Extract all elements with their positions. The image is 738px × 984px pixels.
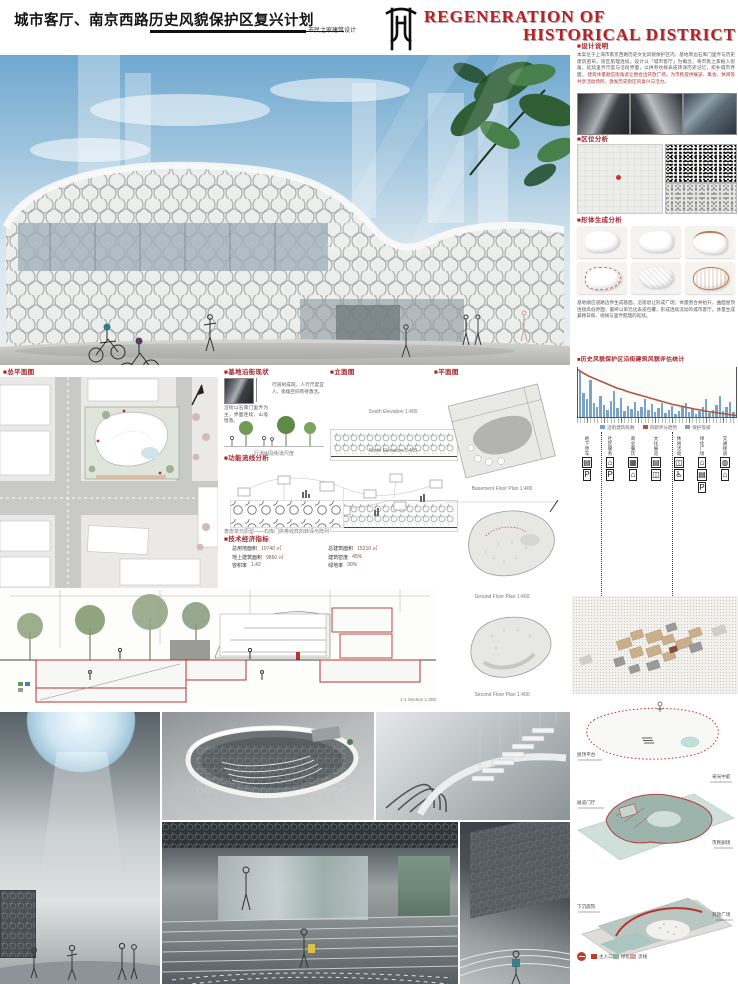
render-atrium-oculus [0,712,160,984]
plan-second [438,604,566,692]
design-notes-header: ■设计说明 [577,43,608,50]
indicator-value: 45% [352,554,362,561]
location-map [577,144,663,214]
plan-basement-caption: Basement Floor Plan 1:400 [438,486,566,492]
axon-legend-item: 流线 [630,954,647,959]
stats-chart [577,367,737,418]
timeline-column: 商业餐饮 ▦⌂ [623,434,643,494]
render-interior-steps [162,822,458,984]
timeline-label: 商业餐饮 [630,436,636,456]
aerial-lattice-texture [196,746,346,796]
plans-header: ■平面图 [434,369,459,376]
massing-grid [577,226,737,294]
teal-shirt [512,959,520,967]
massing-step-2 [631,226,681,258]
subtitle: 市民之家建筑设计 [308,25,356,34]
plan-basement [438,380,566,484]
timeline-label: 绿化广场 [699,436,705,456]
seal-logo-icon [383,3,419,53]
timeline-label: 地下停车 [584,436,590,456]
indicator-row: 地上建筑面积 9860 ㎡ [232,554,318,561]
indicator-label: 总用地面积 [232,545,257,552]
axon-legend-item: 绿化 [613,954,630,959]
street-photo [224,378,254,404]
massing-step-1 [577,226,627,258]
stats-header: ■历史风貌保护区沿街建筑风貌评估统计 [577,357,737,363]
courtyard-tree-view [398,856,450,916]
axon-middle-layer [578,794,734,860]
axon-label-right-3: 开放广场 [712,912,730,918]
site-photo-3 [683,93,737,135]
section-building [215,608,392,660]
title-en-line1: REGENERATION OF [424,8,736,25]
indicator-label: 建筑密度 [328,554,348,561]
timeline-label: 休闲活动 [676,436,682,456]
indicator-row: 总建筑面积 15210 ㎡ [328,545,412,552]
indicator-value: 15210 ㎡ [357,545,377,552]
timeline-pictograms: ▤P [581,456,594,481]
indicators-table: 总用地面积 10740 ㎡ 总建筑面积 15210 ㎡ 地上建筑面积 9860 … [232,545,412,569]
design-notes-body-red: 建筑体量顺应街角退让围合出开放广场，为市民提供展览、集会、休闲等共享活动场所，激… [577,72,735,84]
massing-step-5 [631,262,681,294]
indicator-value: 30% [347,562,357,569]
context-axon-buildings [572,596,738,694]
axon-legend: 主入口绿化流线 [577,952,697,961]
elevations-header: ■立面图 [330,369,355,376]
chart-legend-item: 沿街建筑栋数 [600,425,635,431]
indicator-label: 总建筑面积 [328,545,353,552]
timeline-column: 交通接驳 ◍⌂ [715,434,735,494]
massing-text: 基地顺应道路边界生成基面，沿街退让形成广场；体量围合并抬升，曲面屋顶连接高低界面… [577,300,735,320]
light-shaft [40,752,124,882]
render-lattice-detail [460,822,570,984]
plan-ground-caption: Ground Floor Plan 1:400 [438,594,566,600]
plan-ground [438,496,566,594]
chart-legend-item: 保护等级 [685,425,710,431]
indicator-value: 10740 ㎡ [261,545,281,552]
page-title: 城市客厅、南京西路历史风貌保护区复兴计划 [14,9,314,30]
indicator-value: 1.42 [251,562,261,569]
massing-step-3 [685,226,735,258]
timeline-column: 绿化广场 ⌂▤P [692,434,712,494]
timeline-pictograms: ⌂▤P [696,456,709,494]
site-plan [0,377,218,591]
spiral-stair-drawing [376,712,570,820]
indicator-label: 容积率 [232,562,247,569]
title-underline [150,30,306,33]
indicator-value: 9860 ㎡ [266,554,284,561]
section-caption: 1-1 Section 1:300 [356,697,436,702]
axon-label-right-2: 市民剧场 [712,840,730,846]
site-parcel [85,407,179,479]
axon-roof-layer [587,702,719,759]
timeline-column: 社区服务 ⌂P [600,434,620,494]
timeline-pictograms: ⌂P [604,456,617,481]
interior-person [226,862,266,918]
massing-step-6 [685,262,735,294]
plan-second-caption: Second Floor Plan 1:400 [438,692,566,698]
timeline-label: 社区服务 [607,436,613,456]
facade-pattern-strip [230,500,344,528]
indicators-header: ■技术经济指标 [224,536,269,543]
render-aerial-model [162,712,374,820]
siteplan-header: ■总平面图 [3,369,34,376]
aerial-texture-map [665,183,737,214]
no-entry-icon [577,952,586,961]
chart-axis-ticks [577,418,735,423]
indicator-label: 地上建筑面积 [232,554,262,561]
street-trees-diagram [224,416,324,450]
location-header: ■区位分析 [577,136,608,143]
title-en-line2: HISTORICAL DISTRICT [424,26,736,43]
indicator-row: 总用地面积 10740 ㎡ [232,545,318,552]
divider [256,378,257,402]
chart-legend: 沿街建筑栋数风貌评分趋势保护等级 [600,425,711,431]
timeline-pictograms: ▤◫ [650,456,663,481]
indicator-label: 绿地率 [328,562,343,569]
axon-legend-item: 主入口 [591,954,613,959]
context-axon-map [572,596,738,694]
atrium-people [0,914,160,984]
building-section [0,588,436,706]
timeline-label: 交通接驳 [722,436,728,456]
design-notes-text: 本案位于上海市南京西路历史文化风貌保护区内，基地周边石库门里弄与历史建筑密布，街… [577,52,735,85]
poster-board: 城市客厅、南京西路历史风貌保护区复兴计划 市民之家建筑设计 REGENERATI… [0,0,738,984]
site-marker [616,175,621,180]
chart-line [578,367,736,417]
indicator-row: 容积率 1.42 [232,562,318,569]
axon-label-right-1: 采光中庭 [712,774,730,780]
axon-label-left-1: 屋顶平台 [577,752,595,758]
main-exterior-render [0,55,570,365]
detail-arcs [460,914,570,984]
street-caption-2: 行道树成荫，人行尺度宜人，街角空间有待激活。 [272,382,324,395]
yellow-bag [308,944,315,953]
chart-legend-item: 风貌评分趋势 [643,425,678,431]
lattice-ceiling [162,822,458,848]
site-photo-2 [630,93,683,135]
axon-label-left-2: 展览门厅 [577,800,595,806]
timeline-pictograms: ▦⌂ [627,456,640,481]
axon-legend-items: 主入口绿化流线 [591,954,647,960]
figure-ground-map [665,144,737,183]
pattern-caption: 表皮单元原型——石库门拱券纹样的转译与阵列 [224,528,424,535]
wide-steps [162,914,458,984]
lattice-detail-texture [470,822,570,919]
axon-label-left-3: 下沉庭院 [577,904,595,910]
render-spiral-stair [376,712,570,820]
massing-header: ■形体生成分析 [577,217,622,224]
street-header: ■基地沿街现状 [224,369,269,376]
timeline-column: 地下停车 ▤P [577,434,597,494]
timeline-pictograms: ◍⌂ [719,456,732,481]
timeline-pictograms: ◫♿ [673,456,686,481]
site-photo-1 [577,93,630,135]
indicator-row: 建筑密度 45% [328,554,412,561]
timeline-label: 文化展览 [653,436,659,456]
axon-ground-layer [582,898,732,956]
massing-step-4 [577,262,627,294]
indicator-row: 绿地率 30% [328,562,412,569]
timeline-column: 文化展览 ▤◫ [646,434,666,494]
